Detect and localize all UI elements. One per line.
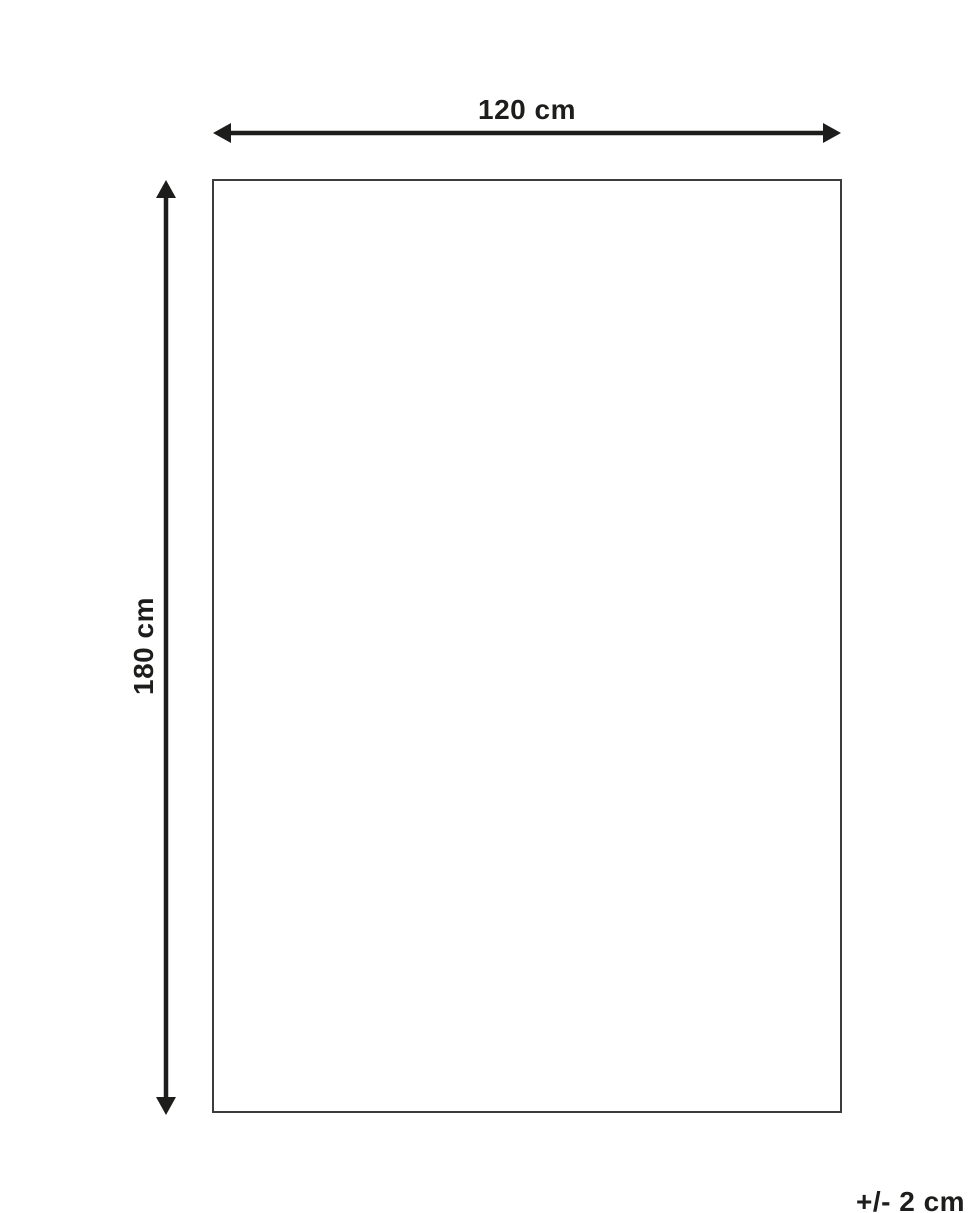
height-arrow-icon (154, 179, 178, 1116)
width-arrow-icon (212, 121, 842, 145)
tolerance-label: +/- 2 cm (856, 1186, 965, 1213)
dimension-diagram: 120 cm 180 cm +/- 2 cm (0, 0, 970, 1213)
product-outline-rectangle (212, 179, 842, 1113)
